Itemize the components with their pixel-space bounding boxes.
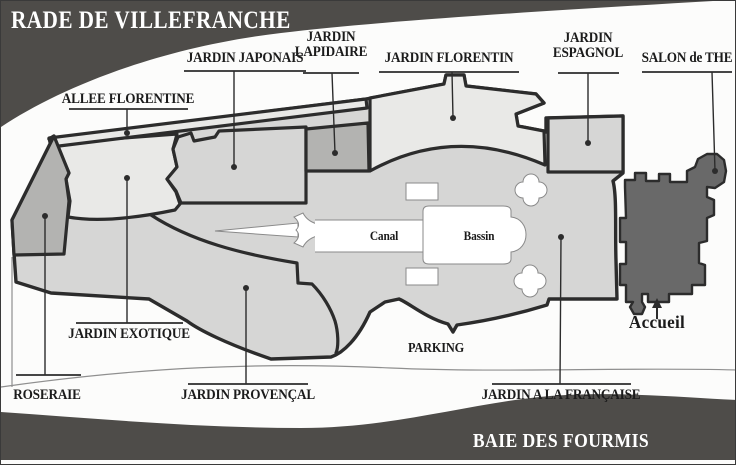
- label-salon-de-the: SALON de THE: [642, 51, 733, 66]
- label-roseraie: ROSERAIE: [13, 388, 81, 403]
- label-jardin-provencal: JARDIN PROVENÇAL: [181, 388, 315, 403]
- region-roseraie: [12, 136, 69, 255]
- label-jardin-exotique: JARDIN EXOTIQUE: [68, 327, 190, 342]
- garden-map: RADE DE VILLEFRANCHE BAIE DES FOURMIS AL…: [0, 0, 736, 465]
- label-accueil: Accueil: [629, 315, 685, 330]
- region-jardin-japonais: [167, 127, 306, 203]
- label-jardin-espagnol: JARDIN ESPAGNOL: [553, 31, 623, 61]
- label-jardin-lapidaire: JARDIN LAPIDAIRE: [295, 30, 368, 60]
- region-jardin-lapidaire: [306, 123, 369, 171]
- label-parking: PARKING: [408, 341, 464, 356]
- region-jardin-exotique: [56, 134, 180, 219]
- label-jardin-japonais: JARDIN JAPONAIS: [187, 51, 304, 66]
- label-allee-florentine: ALLEE FLORENTINE: [62, 92, 195, 107]
- label-jardin-a-la-francaise: JARDIN A LA FRANÇAISE: [482, 388, 641, 403]
- parterre-rect-bottom: [406, 268, 438, 285]
- parterre-rect-top: [406, 183, 438, 200]
- label-canal: Canal: [370, 228, 398, 243]
- label-bassin: Bassin: [464, 228, 495, 243]
- label-jardin-florentin: JARDIN FLORENTIN: [385, 51, 514, 66]
- sea-label-rade-de-villefranche: RADE DE VILLEFRANCHE: [11, 7, 291, 35]
- villa-building: [620, 154, 726, 314]
- sea-label-baie-des-fourmis: BAIE DES FOURMIS: [473, 430, 649, 453]
